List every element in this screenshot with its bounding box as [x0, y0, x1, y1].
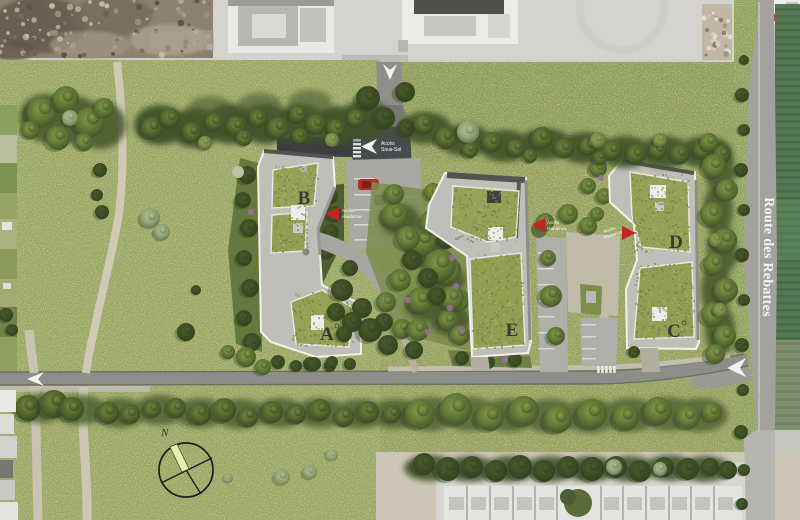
- svg-text:Accès: Accès: [547, 220, 560, 225]
- svg-text:résidence: résidence: [547, 226, 567, 231]
- svg-text:résidence: résidence: [342, 214, 362, 219]
- svg-text:B: B: [298, 188, 311, 209]
- svg-text:D: D: [669, 232, 683, 253]
- svg-text:Route des Rebattes: Route des Rebattes: [759, 197, 776, 317]
- svg-text:C: C: [667, 321, 681, 342]
- svg-text:Accès: Accès: [342, 208, 355, 213]
- svg-text:A: A: [320, 324, 334, 345]
- svg-text:N: N: [160, 427, 169, 439]
- svg-text:Sous-Sol: Sous-Sol: [381, 147, 401, 153]
- svg-text:E: E: [506, 320, 519, 341]
